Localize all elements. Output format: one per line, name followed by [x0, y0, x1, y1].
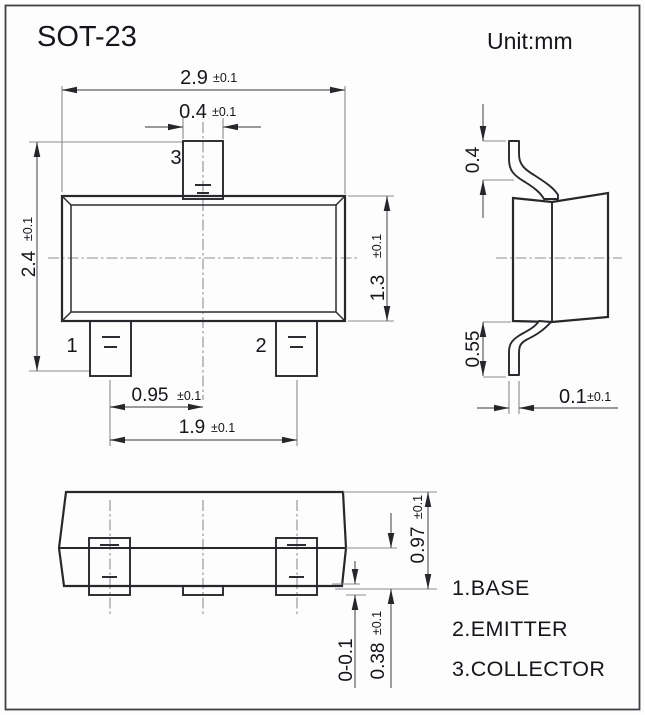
dim-total-height-tolerance: ±0.1 [21, 217, 35, 241]
legend-collector: 3.COLLECTOR [452, 657, 605, 681]
front-view: 2.9 ±0.1 0.4 ±0.1 2.4 ±0.1 1.3 ±0.1 0.95… [19, 67, 394, 446]
page-border [6, 6, 640, 710]
dim-pin-span-value: 1.9 [179, 417, 205, 438]
dim-lead-thickness-value: 0.1 [559, 386, 587, 408]
page-title: SOT-23 [37, 21, 137, 53]
dim-pin3-width-tolerance: ±0.1 [212, 105, 236, 119]
pin-legend: 1.BASE 2.EMITTER 3.COLLECTOR [452, 576, 605, 681]
side-bottom-lead [509, 321, 551, 375]
side-view: 0.4 0.55 0.1 ±0.1 [463, 104, 622, 414]
front-extension-lines [29, 86, 394, 446]
dim-lead-thickness-tolerance: ±0.1 [587, 390, 611, 404]
dim-body-height-value: 1.3 [368, 275, 389, 301]
pin2-number-label: 2 [255, 335, 266, 357]
dim-body-width-tolerance: ±0.1 [213, 71, 237, 85]
dim-body-width-value: 2.9 [180, 67, 208, 89]
package-outline-drawing: SOT-23 Unit:mm [0, 0, 645, 715]
dim-lead-top-value: 0.4 [463, 146, 484, 173]
datasheet-page: SOT-23 Unit:mm [0, 0, 645, 715]
pin1-lead [90, 321, 131, 376]
dim-pin-pitch-value: 0.95 [132, 385, 169, 406]
bottom-dimension-lines [355, 492, 428, 688]
dim-standoff-tolerance: ±0.1 [370, 611, 384, 635]
pin1-centermark [102, 337, 120, 347]
dim-lead-bottom-value: 0.55 [463, 331, 484, 368]
dim-body-thickness-tolerance: ±0.1 [411, 495, 425, 519]
unit-label: Unit:mm [487, 28, 573, 54]
pin2-lead [276, 321, 317, 376]
dim-standoff-value: 0.38 [368, 643, 389, 680]
dim-lead-protrusion-value: 0-0.1 [336, 638, 357, 681]
bottom-view: 0.97 ±0.1 0.38 ±0.1 0-0.1 [59, 492, 437, 688]
dim-total-height-value: 2.4 [19, 250, 40, 277]
side-top-lead [509, 141, 558, 199]
pin1-number-label: 1 [66, 335, 77, 357]
dim-pin-span-tolerance: ±0.1 [211, 421, 235, 435]
side-dimension-lines [477, 104, 618, 408]
pin2-centermark [288, 337, 306, 347]
dim-body-thickness-value: 0.97 [408, 527, 429, 564]
dim-body-height-tolerance: ±0.1 [370, 234, 384, 258]
legend-emitter: 2.EMITTER [452, 617, 568, 641]
dim-pin-pitch-tolerance: ±0.1 [177, 389, 201, 403]
dim-pin3-width-value: 0.4 [179, 101, 207, 123]
pin3-number-label: 3 [170, 147, 181, 169]
legend-base: 1.BASE [452, 576, 530, 600]
